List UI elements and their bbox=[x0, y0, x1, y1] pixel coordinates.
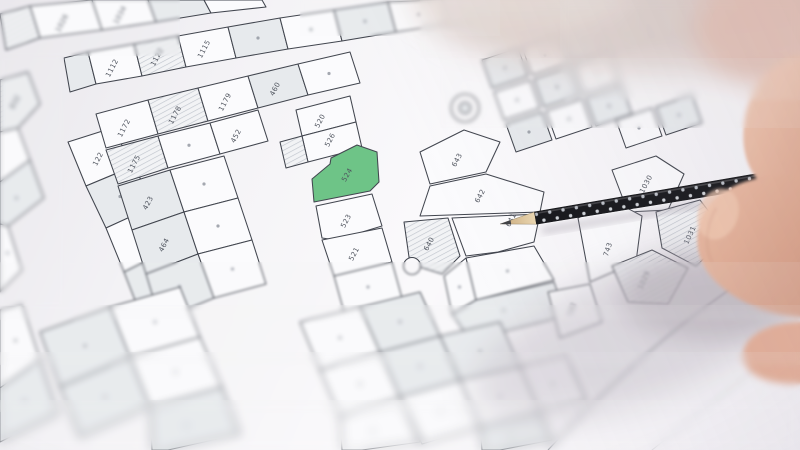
roundabout-inner bbox=[460, 103, 471, 114]
blurred-parcel-number-dot bbox=[555, 85, 558, 88]
photo-cadastral-map: 1026103411121122111583212211721178117946… bbox=[0, 0, 800, 450]
blurred-parcel-number-dot bbox=[358, 382, 361, 385]
blurred-parcel-number-dot bbox=[83, 344, 86, 347]
blurred-parcel-number-dot bbox=[256, 36, 259, 39]
blurred-parcel-number-dot bbox=[363, 20, 366, 23]
blurred-parcel-number-dot bbox=[418, 365, 421, 368]
blurred-parcel-number-dot bbox=[503, 66, 506, 69]
blurred-parcel-number-dot bbox=[338, 336, 341, 339]
blurred-parcel-number-dot bbox=[595, 72, 598, 75]
parcel bbox=[148, 0, 211, 22]
blurred-parcel-number-dot bbox=[202, 182, 205, 185]
blurred-parcel-number-dot bbox=[509, 434, 512, 437]
blurred-parcel-number-dot bbox=[103, 395, 106, 398]
blurred-parcel-number-dot bbox=[478, 350, 481, 353]
blurred-parcel-number-dot bbox=[567, 117, 570, 120]
map-scene: 1026103411121122111583212211721178117946… bbox=[0, 0, 800, 450]
blurred-parcel-number-dot bbox=[502, 309, 505, 312]
blurred-parcel-number-dot bbox=[527, 130, 530, 133]
blurred-parcel-number-dot bbox=[187, 144, 190, 147]
parcel-832 bbox=[0, 72, 40, 132]
blurred-parcel-number-dot bbox=[607, 104, 610, 107]
parcel bbox=[0, 224, 22, 292]
blurred-parcel-number-dot bbox=[458, 285, 461, 288]
blurred-parcel-number-dot bbox=[174, 370, 177, 373]
blurred-parcel-number-dot bbox=[439, 410, 442, 413]
blurred-parcel-number-dot bbox=[398, 320, 401, 323]
blurred-parcel-number-dot bbox=[327, 72, 330, 75]
blurred-parcel-number-dot bbox=[515, 98, 518, 101]
blurred-parcel-number-dot bbox=[23, 399, 26, 402]
blurred-parcel-number-dot bbox=[15, 196, 18, 199]
blurred-parcel-number-dot bbox=[216, 224, 219, 227]
parcel bbox=[204, 0, 266, 13]
blurred-parcel-number-dot bbox=[366, 285, 369, 288]
blurred-parcel-number-dot bbox=[231, 267, 234, 270]
blurred-parcel-number-dot bbox=[14, 339, 17, 342]
blurred-parcel-number-dot bbox=[637, 126, 640, 129]
blurred-parcel-number-dot bbox=[677, 113, 680, 116]
blurred-parcel-number-dot bbox=[6, 251, 9, 254]
blurred-parcel-number-dot bbox=[506, 269, 509, 272]
cul-de-sac bbox=[404, 258, 421, 275]
blurred-parcel-number-dot bbox=[371, 430, 374, 433]
blurred-parcel-number-dot bbox=[417, 13, 420, 16]
blurred-parcel-number-dot bbox=[153, 320, 156, 323]
blurred-parcel-number-dot bbox=[185, 424, 188, 427]
blurred-parcel-number-dot bbox=[309, 28, 312, 31]
